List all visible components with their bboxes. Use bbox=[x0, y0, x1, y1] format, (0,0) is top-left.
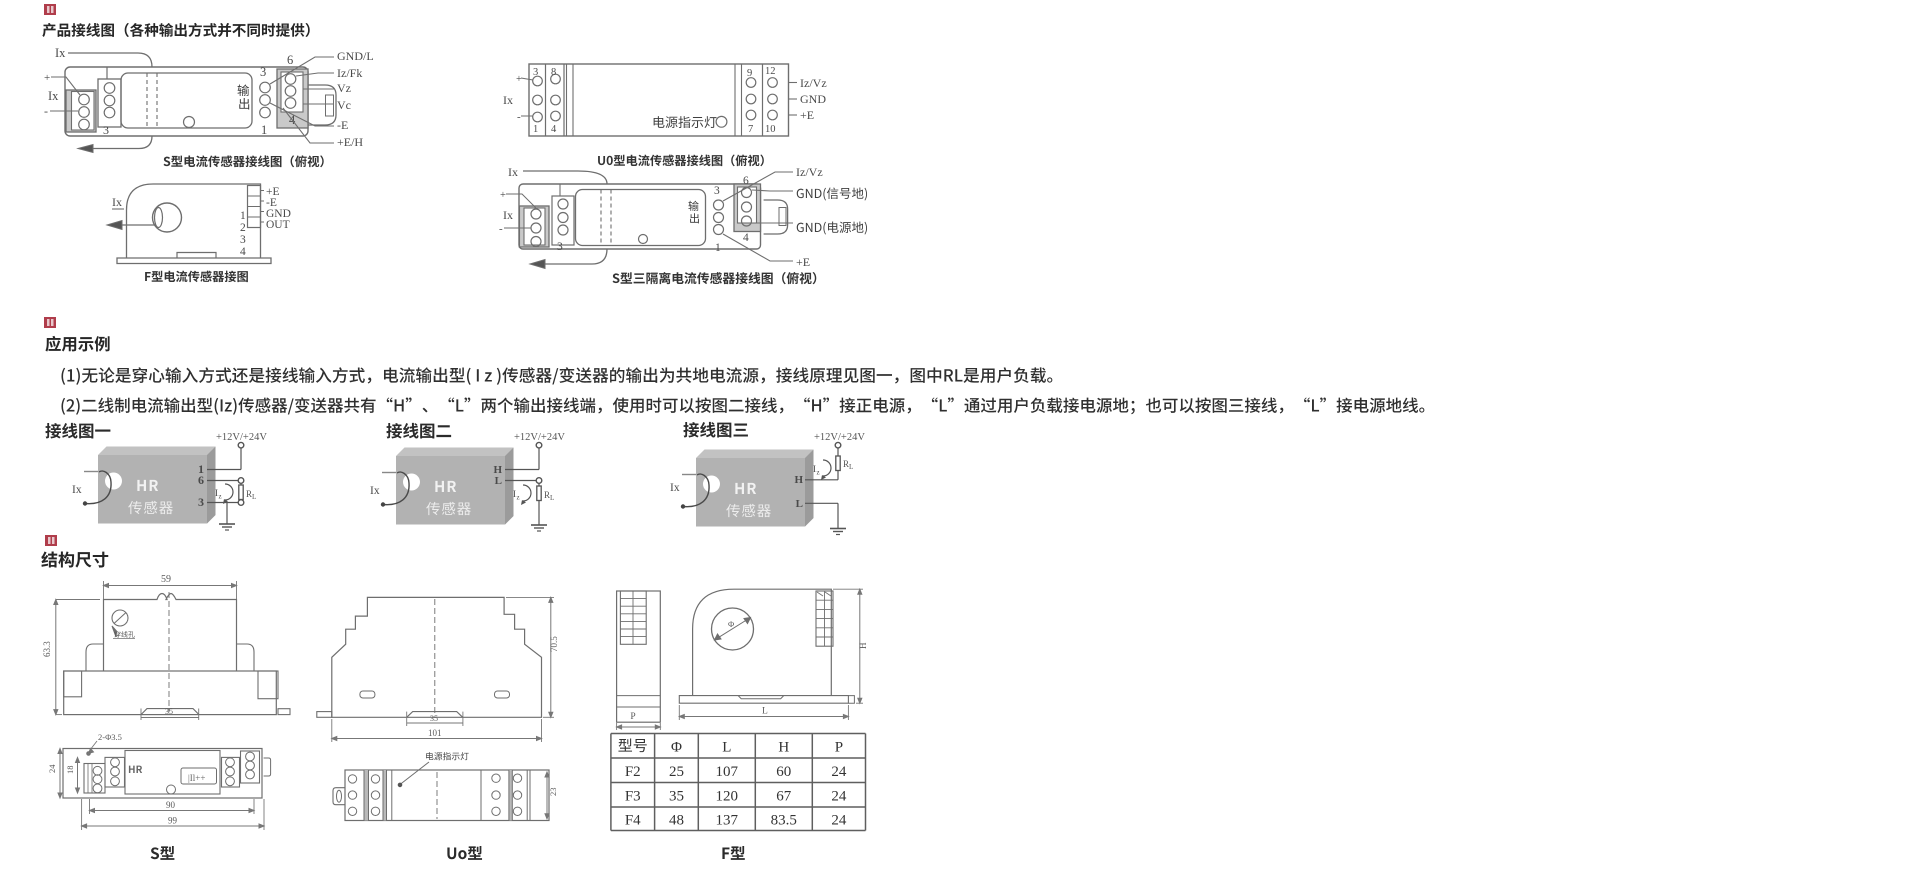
svg-text:H: H bbox=[794, 474, 803, 486]
svg-text:Vc: Vc bbox=[337, 98, 351, 112]
svg-text:Ix: Ix bbox=[508, 165, 518, 179]
svg-text:6: 6 bbox=[743, 175, 749, 187]
svg-text:z: z bbox=[517, 494, 520, 502]
svg-text:4: 4 bbox=[743, 232, 749, 244]
svg-text:z: z bbox=[817, 469, 820, 477]
svg-text:Ix: Ix bbox=[72, 484, 82, 496]
svg-text:137: 137 bbox=[716, 813, 739, 829]
svg-text:2: 2 bbox=[240, 222, 246, 234]
svg-text:1: 1 bbox=[715, 242, 721, 254]
svg-text:+12V/+24V: +12V/+24V bbox=[514, 432, 565, 443]
svg-text:101: 101 bbox=[428, 728, 442, 738]
svg-text:3: 3 bbox=[260, 65, 266, 79]
svg-text:+E: +E bbox=[800, 108, 814, 122]
svg-text:Ix: Ix bbox=[370, 485, 380, 497]
svg-text:12: 12 bbox=[765, 66, 776, 77]
svg-text:59: 59 bbox=[161, 574, 171, 585]
svg-text:L: L bbox=[495, 475, 502, 487]
svg-text:24: 24 bbox=[47, 764, 57, 773]
svg-text:+: + bbox=[500, 190, 506, 201]
svg-text:L: L bbox=[550, 494, 554, 502]
svg-text:F2: F2 bbox=[625, 764, 641, 780]
svg-text:H: H bbox=[858, 642, 868, 649]
svg-text:99: 99 bbox=[168, 816, 178, 826]
svg-text:23: 23 bbox=[548, 788, 558, 797]
svg-text:120: 120 bbox=[716, 789, 739, 805]
svg-text:25: 25 bbox=[669, 764, 684, 780]
svg-text:63.3: 63.3 bbox=[42, 641, 52, 657]
svg-text:8: 8 bbox=[551, 67, 556, 78]
svg-text:3: 3 bbox=[714, 185, 720, 197]
svg-text:-: - bbox=[44, 104, 48, 118]
svg-text:Ix: Ix bbox=[48, 89, 59, 103]
svg-text:24: 24 bbox=[831, 789, 847, 805]
svg-text:48: 48 bbox=[669, 813, 684, 829]
svg-text:1: 1 bbox=[261, 123, 267, 137]
svg-text:-: - bbox=[499, 223, 503, 235]
svg-text:L: L bbox=[849, 463, 853, 471]
svg-text:18: 18 bbox=[65, 766, 75, 775]
svg-text:-E: -E bbox=[337, 118, 348, 132]
svg-text:24: 24 bbox=[831, 813, 847, 829]
svg-text:GND: GND bbox=[800, 92, 826, 106]
svg-text:+: + bbox=[44, 72, 50, 84]
svg-text:Ix: Ix bbox=[112, 195, 122, 209]
svg-text:|Il++: |Il++ bbox=[188, 773, 205, 783]
svg-text:+E/H: +E/H bbox=[337, 135, 363, 149]
svg-text:67: 67 bbox=[776, 789, 792, 805]
svg-text:Ix: Ix bbox=[503, 93, 513, 107]
svg-text:L: L bbox=[762, 707, 768, 717]
svg-text:OUT: OUT bbox=[266, 219, 290, 231]
svg-text:L: L bbox=[796, 498, 803, 510]
svg-text:2-Φ3.5: 2-Φ3.5 bbox=[98, 732, 122, 742]
svg-text:24: 24 bbox=[831, 764, 847, 780]
svg-text:70.5: 70.5 bbox=[549, 636, 559, 652]
svg-text:L: L bbox=[252, 493, 256, 501]
svg-text:+E: +E bbox=[796, 255, 810, 269]
svg-text:90: 90 bbox=[166, 800, 176, 810]
svg-text:35: 35 bbox=[669, 789, 684, 805]
svg-text:107: 107 bbox=[716, 764, 739, 780]
svg-text:F3: F3 bbox=[625, 789, 641, 805]
svg-text:Iz/Vz: Iz/Vz bbox=[800, 76, 827, 90]
svg-text:4: 4 bbox=[240, 246, 246, 258]
svg-text:Ix: Ix bbox=[55, 46, 66, 60]
svg-text:L: L bbox=[722, 740, 731, 756]
svg-text:Iz/Fk: Iz/Fk bbox=[337, 66, 362, 80]
svg-text:6: 6 bbox=[198, 473, 204, 487]
svg-text:3: 3 bbox=[198, 495, 204, 509]
svg-text:P: P bbox=[630, 712, 635, 722]
svg-text:3: 3 bbox=[240, 234, 246, 246]
svg-text:60: 60 bbox=[776, 764, 791, 780]
svg-text:Φ: Φ bbox=[671, 740, 682, 756]
svg-text:6: 6 bbox=[287, 53, 293, 67]
svg-text:35: 35 bbox=[430, 714, 438, 723]
svg-text:Vz: Vz bbox=[337, 81, 351, 95]
svg-text:+: + bbox=[516, 74, 522, 85]
svg-text:3: 3 bbox=[103, 123, 109, 137]
svg-text:+12V/+24V: +12V/+24V bbox=[814, 432, 865, 443]
svg-text:10: 10 bbox=[765, 124, 776, 135]
svg-text:Ix: Ix bbox=[503, 208, 513, 222]
svg-text:Iz/Vz: Iz/Vz bbox=[796, 165, 823, 179]
svg-text:-: - bbox=[517, 111, 521, 123]
svg-text:F4: F4 bbox=[625, 813, 641, 829]
svg-text:+12V/+24V: +12V/+24V bbox=[216, 432, 267, 443]
svg-text:3: 3 bbox=[557, 241, 563, 253]
svg-text:Ix: Ix bbox=[670, 482, 680, 494]
svg-text:z: z bbox=[219, 493, 222, 501]
svg-text:1: 1 bbox=[240, 210, 246, 222]
svg-text:4: 4 bbox=[551, 124, 557, 135]
svg-text:3: 3 bbox=[533, 67, 538, 78]
svg-text:P: P bbox=[835, 740, 843, 756]
svg-text:7: 7 bbox=[748, 124, 753, 135]
svg-text:1: 1 bbox=[533, 124, 538, 135]
svg-text:GND/L: GND/L bbox=[337, 49, 374, 63]
svg-text:Φ: Φ bbox=[728, 619, 734, 629]
svg-text:83.5: 83.5 bbox=[771, 813, 797, 829]
svg-text:H: H bbox=[778, 740, 789, 756]
svg-text:9: 9 bbox=[747, 68, 752, 79]
